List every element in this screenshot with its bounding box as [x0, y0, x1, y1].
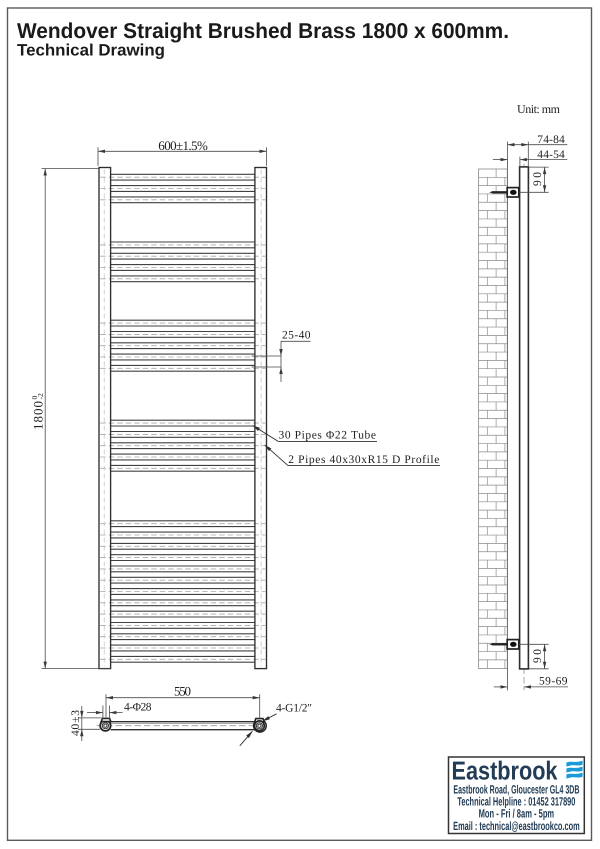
svg-text:Unit: mm: Unit: mm — [517, 102, 561, 116]
svg-text:-2: -2 — [36, 393, 45, 399]
svg-text:4-G1/2″: 4-G1/2″ — [276, 702, 312, 714]
svg-text:Email : technical@eastbrookco.: Email : technical@eastbrookco.com — [453, 819, 580, 833]
svg-text:Wendover Straight Brushed Bras: Wendover Straight Brushed Brass 1800 x 6… — [17, 19, 509, 43]
svg-text:1800: 1800 — [30, 401, 45, 430]
svg-text:59-69: 59-69 — [539, 675, 568, 687]
svg-text:550: 550 — [174, 683, 191, 698]
svg-text:40±3: 40±3 — [70, 710, 82, 736]
svg-text:30 Pipes Φ22 Tube: 30 Pipes Φ22 Tube — [279, 430, 377, 442]
svg-text:Eastbrook: Eastbrook — [452, 756, 558, 786]
svg-text:44-54: 44-54 — [537, 149, 565, 161]
svg-text:2 Pipes 40x30xR15 D Profile: 2 Pipes 40x30xR15 D Profile — [288, 454, 439, 466]
svg-text:600±1.5%: 600±1.5% — [158, 138, 208, 153]
svg-text:25-40: 25-40 — [282, 330, 311, 342]
svg-text:74-84: 74-84 — [537, 134, 565, 146]
svg-text:Technical Drawing: Technical Drawing — [17, 42, 165, 60]
svg-text:4-Φ28: 4-Φ28 — [124, 701, 152, 713]
